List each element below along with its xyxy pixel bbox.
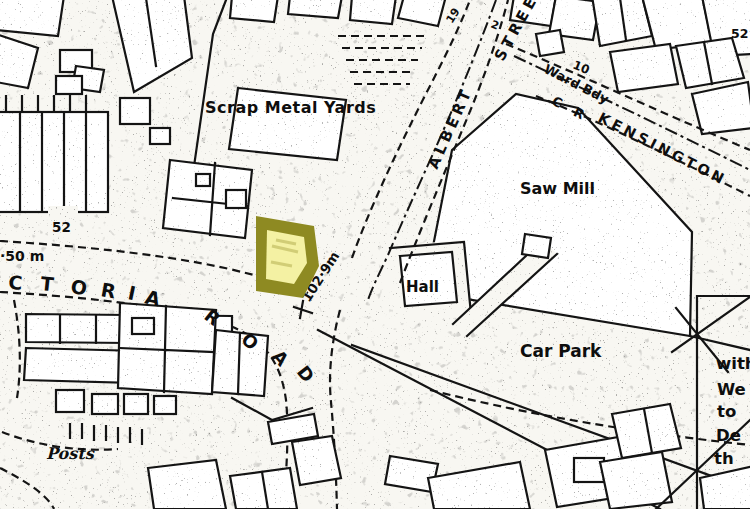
map-canvas: Scrap Metal Yards ALBERT STREET Ward Bdy…: [0, 0, 750, 509]
map-viewport: Scrap Metal Yards ALBERT STREET Ward Bdy…: [0, 0, 750, 509]
scan-speckle-noise: [0, 0, 750, 509]
